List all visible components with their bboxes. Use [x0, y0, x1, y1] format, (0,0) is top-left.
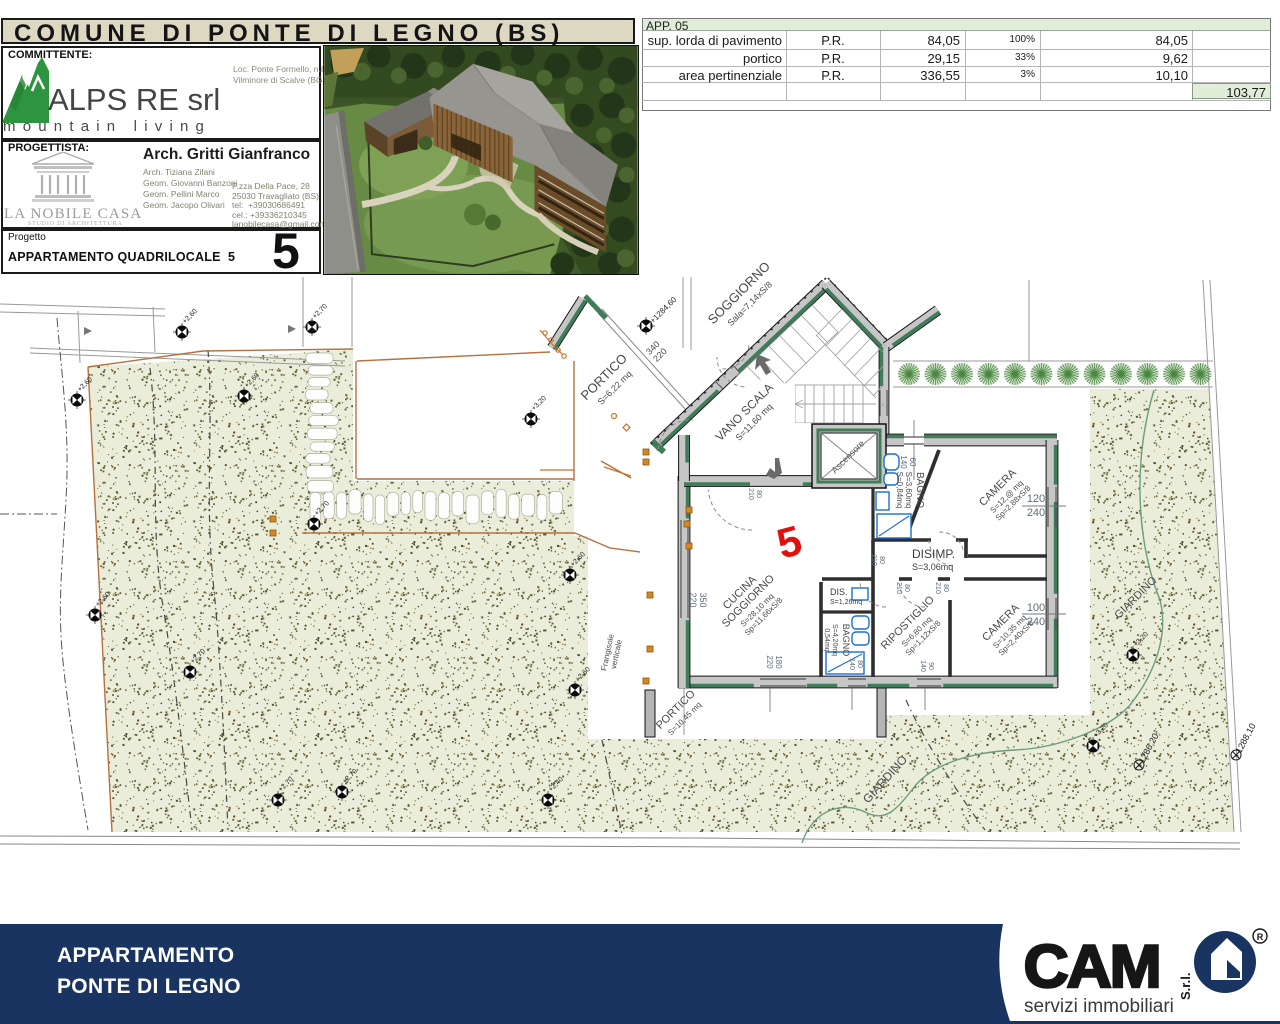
svg-text:80: 80 — [903, 584, 910, 592]
svg-text:DISIMP.: DISIMP. — [912, 547, 955, 561]
svg-text:S=3,06mq: S=3,06mq — [912, 562, 953, 572]
svg-text:S=1,26mq: S=1,26mq — [830, 599, 862, 606]
svg-text:240: 240 — [1027, 507, 1045, 519]
svg-text:100: 100 — [1027, 602, 1045, 614]
svg-text:S=0,84mq: S=0,84mq — [895, 472, 904, 509]
svg-text:210: 210 — [747, 488, 754, 500]
svg-text:DIS.: DIS. — [830, 587, 848, 597]
svg-text:servizi immobiliari: servizi immobiliari — [1024, 996, 1174, 1017]
svg-text:BAGNO: BAGNO — [914, 472, 925, 508]
svg-text:210: 210 — [934, 582, 941, 594]
svg-text:80: 80 — [942, 584, 949, 592]
svg-text:80: 80 — [755, 490, 762, 498]
svg-text:180: 180 — [774, 655, 783, 669]
svg-text:0,54mq: 0,54mq — [823, 628, 830, 651]
svg-text:S=3,60mq: S=3,60mq — [904, 472, 913, 509]
svg-text:120: 120 — [1027, 493, 1045, 505]
svg-text:80: 80 — [856, 660, 863, 668]
svg-text:220: 220 — [688, 592, 698, 607]
svg-text:140: 140 — [899, 455, 908, 469]
svg-text:350: 350 — [698, 592, 708, 607]
svg-text:BAGNO: BAGNO — [841, 624, 851, 657]
svg-text:80: 80 — [878, 556, 885, 564]
svg-text:CAM: CAM — [1024, 933, 1160, 1000]
svg-text:90: 90 — [927, 662, 934, 670]
svg-text:220: 220 — [765, 655, 774, 669]
svg-text:S.r.l.: S.r.l. — [1178, 973, 1193, 1000]
svg-text:140: 140 — [919, 660, 926, 672]
svg-text:210: 210 — [895, 582, 902, 594]
svg-text:240: 240 — [1027, 616, 1045, 628]
svg-text:140: 140 — [848, 658, 855, 670]
svg-text:S=4,20mq: S=4,20mq — [831, 624, 838, 656]
svg-text:60: 60 — [908, 458, 917, 467]
svg-text:R: R — [1257, 932, 1264, 942]
svg-text:210: 210 — [870, 554, 877, 566]
